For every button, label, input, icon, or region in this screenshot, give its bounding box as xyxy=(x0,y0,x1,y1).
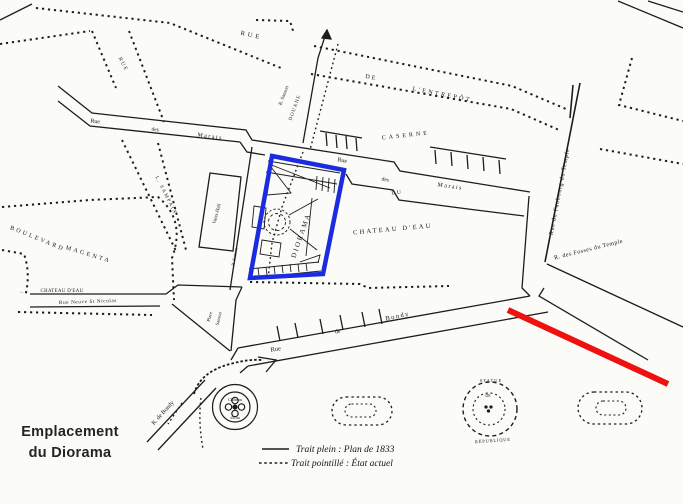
rue-sanson-west-edge xyxy=(230,147,252,290)
label-marais-east-1: Rue xyxy=(337,157,348,165)
dotted-basin-east xyxy=(578,392,642,424)
label-chateau-deau: CHATEAU D'EAU xyxy=(353,223,433,237)
label-bondy-3: Bondy xyxy=(385,311,411,323)
diorama-highlight-rectangle xyxy=(250,156,344,278)
dotted-basin-east-inner xyxy=(596,401,626,415)
label-rue-entrepot-2: DE xyxy=(365,74,378,82)
label-marais-east-2: des xyxy=(381,176,389,183)
statue-outer-circle xyxy=(463,382,517,436)
map-caption: Emplacement du Diorama xyxy=(14,422,126,464)
legend-dotted-label: Trait pointillé : État actuel xyxy=(291,457,393,469)
label-rue-douane: DOUANE xyxy=(289,94,303,121)
dotted-magenta-north-edge xyxy=(2,197,177,300)
dotted-place-north-edge xyxy=(250,282,449,288)
label-caserne: CASERNE xyxy=(382,130,431,141)
label-r-de-bondy: R. de Bondy xyxy=(151,400,176,426)
label-marais-west-1: Rue xyxy=(90,118,101,125)
republique-features xyxy=(332,382,642,436)
label-boulevard: BOULEVARD xyxy=(9,225,66,253)
dotted-west-line xyxy=(18,312,152,315)
label-chateau-deau-small: CHATEAU D'EAU xyxy=(41,289,84,294)
statue-dot xyxy=(488,410,490,412)
street-corner-topright xyxy=(618,1,683,28)
caption-line-2: du Diorama xyxy=(14,443,126,464)
label-statue: STATUE xyxy=(480,378,502,383)
fountain-petal xyxy=(238,404,244,410)
label-statue-de: DE xyxy=(485,393,491,398)
label-faubourg-temple: Rue du Faubourg du Temple xyxy=(549,148,572,236)
building-hatch-ticks-a xyxy=(326,133,357,151)
label-marais-west-2: des xyxy=(151,127,159,134)
street-labels: RUE DE L'ENTREPÔT RUE L. SAMPAIX Rue des… xyxy=(9,30,624,444)
chateau-deau-fountain xyxy=(213,385,258,430)
legend-solid-label: Trait plein : Plan de 1833 xyxy=(296,445,395,455)
label-rue-entrepot-1: RUE xyxy=(240,30,263,41)
label-rue-sanson: R. Sanson xyxy=(279,85,291,106)
diorama-rotunda-inner xyxy=(269,214,286,231)
label-marais-west-3: Marais xyxy=(197,132,223,141)
north-arrowhead xyxy=(322,30,331,39)
label-fosses-temple: R. des Fosses du Temple xyxy=(554,239,624,262)
rue-de-bondy-lines xyxy=(238,296,548,366)
label-rue-entrepot-3: L'ENTREPÔT xyxy=(412,84,473,103)
dotted-east-streets xyxy=(600,58,683,164)
legend: Trait plein : Plan de 1833 Trait pointil… xyxy=(259,445,395,469)
label-marais-east-3: Marais xyxy=(437,182,463,192)
rue-fosses-temple-lines xyxy=(539,264,683,360)
dotted-basin-west xyxy=(332,397,392,425)
label-rue-neuve-st-nicolas: Rue Neuve St Nicolas xyxy=(59,298,117,306)
label-diorama: DIORAMA xyxy=(290,212,313,259)
label-republique: RÉPUBLIQUE xyxy=(475,437,511,444)
fountain-petal xyxy=(225,404,231,410)
label-rue-sanson-south: R. Sanson xyxy=(230,247,238,267)
dotted-cross-street-upper xyxy=(92,31,164,122)
diorama-rotunda xyxy=(264,209,290,235)
solid-street-lines xyxy=(0,1,683,450)
label-sampaix: L. SAMPAIX xyxy=(154,176,178,216)
scanned-map-page: RUE DE L'ENTREPÔT RUE L. SAMPAIX Rue des… xyxy=(0,0,683,504)
caption-line-1: Emplacement xyxy=(14,422,126,443)
label-place: Place xyxy=(206,311,213,322)
arrow-west-icon: ← xyxy=(20,290,25,295)
block-ne-hatch xyxy=(316,176,335,193)
label-du: DU xyxy=(391,190,402,197)
label-bondy-1: Rue xyxy=(270,345,282,354)
dotted-topleft-line xyxy=(0,31,90,44)
rue-entrepot-north-edge xyxy=(314,46,566,109)
rue-entrepot-south-edge xyxy=(311,74,559,130)
fountain-center-dot xyxy=(233,405,237,409)
east-block-edge xyxy=(522,196,530,296)
label-fountain-deau: d'Eau xyxy=(230,415,240,420)
statue-dot xyxy=(485,406,487,408)
building-hatch-ticks-b xyxy=(435,150,500,174)
dotted-basin-west-inner xyxy=(345,404,376,417)
statue-dot xyxy=(490,406,492,408)
street-corner-topleft xyxy=(0,4,32,20)
dotted-l-corner xyxy=(256,20,294,34)
label-vauxhall: Vaux-Hall xyxy=(212,203,222,225)
label-place-sanson: Sanson xyxy=(215,311,223,326)
label-rue-small: RUE xyxy=(117,56,130,73)
label-magenta: MAGENTA xyxy=(65,245,112,264)
label-fountain-chateau: Château xyxy=(228,397,243,402)
dotted-top-diagonal xyxy=(36,8,281,68)
red-annotation-line xyxy=(508,310,668,384)
